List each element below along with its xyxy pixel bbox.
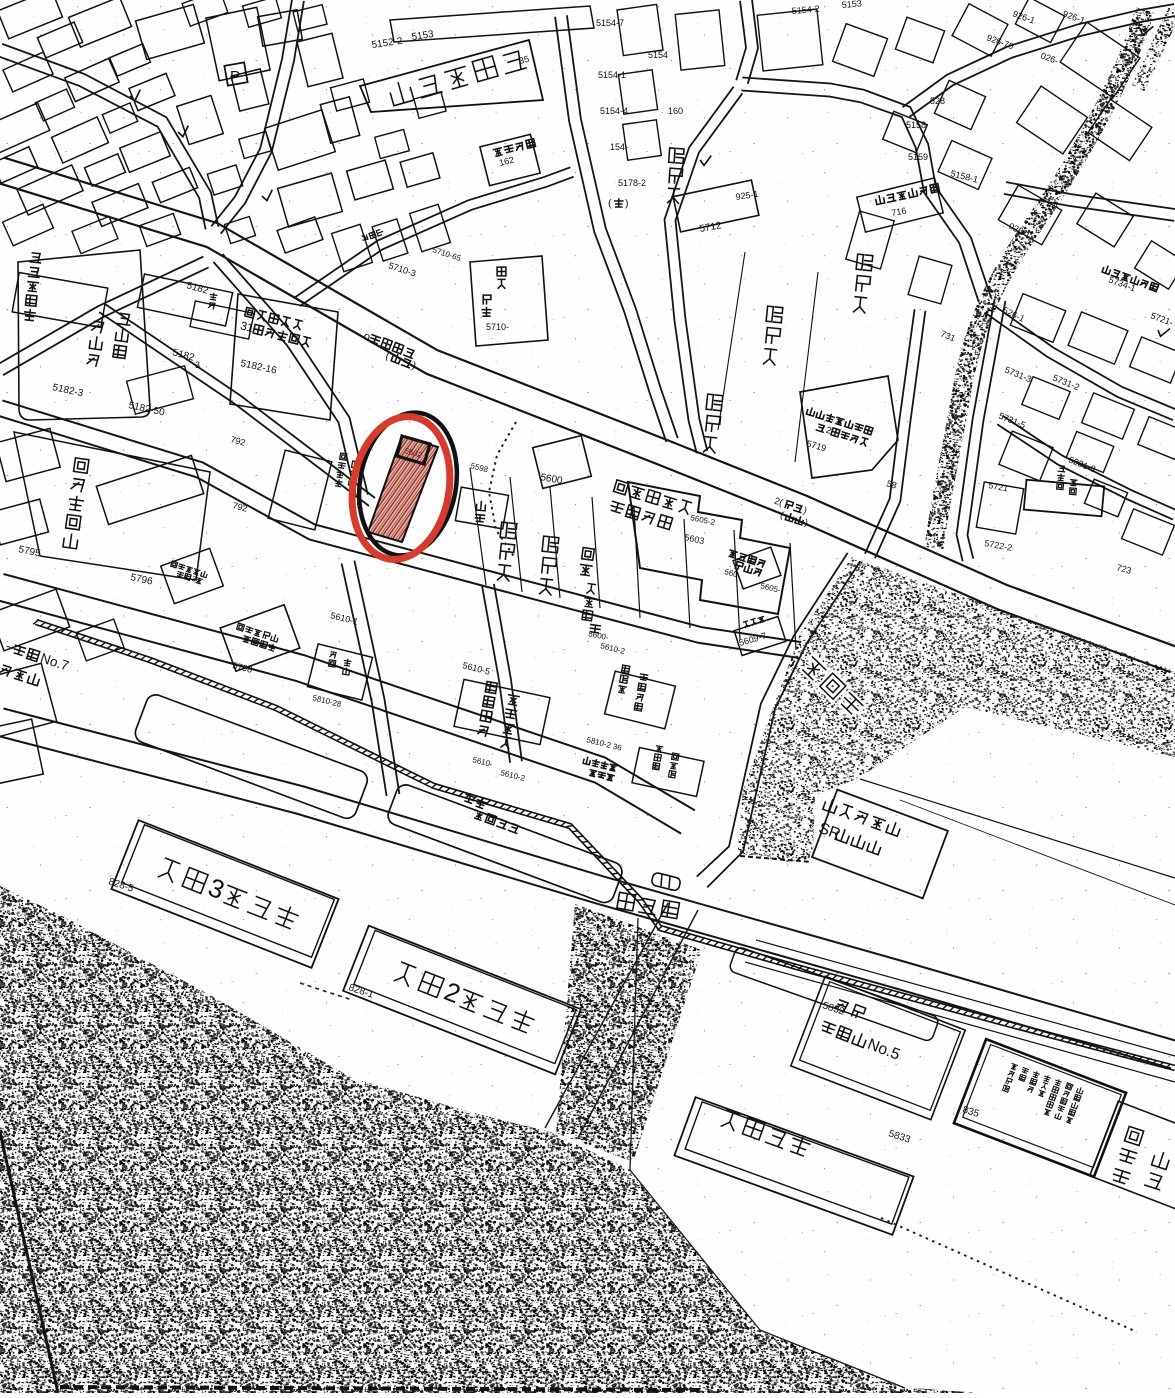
svg-text:5178-2: 5178-2 — [618, 178, 646, 188]
svg-text:160: 160 — [668, 106, 683, 116]
svg-text:5154-4: 5154-4 — [600, 106, 628, 116]
svg-text:P: P — [230, 68, 240, 85]
svg-text:5710-: 5710- — [486, 322, 509, 332]
svg-text:528: 528 — [930, 96, 945, 106]
svg-text:5158: 5158 — [906, 120, 926, 130]
svg-text:154-: 154- — [610, 142, 628, 152]
svg-text:): ) — [625, 198, 629, 210]
svg-text:3: 3 — [195, 360, 200, 370]
svg-text:5159: 5159 — [908, 152, 928, 162]
svg-text:5154-1: 5154-1 — [598, 70, 626, 80]
svg-text:5153: 5153 — [841, 0, 862, 10]
svg-text:(: ( — [608, 198, 612, 210]
svg-text:5154-7: 5154-7 — [596, 18, 624, 28]
svg-text:5154: 5154 — [648, 50, 668, 60]
